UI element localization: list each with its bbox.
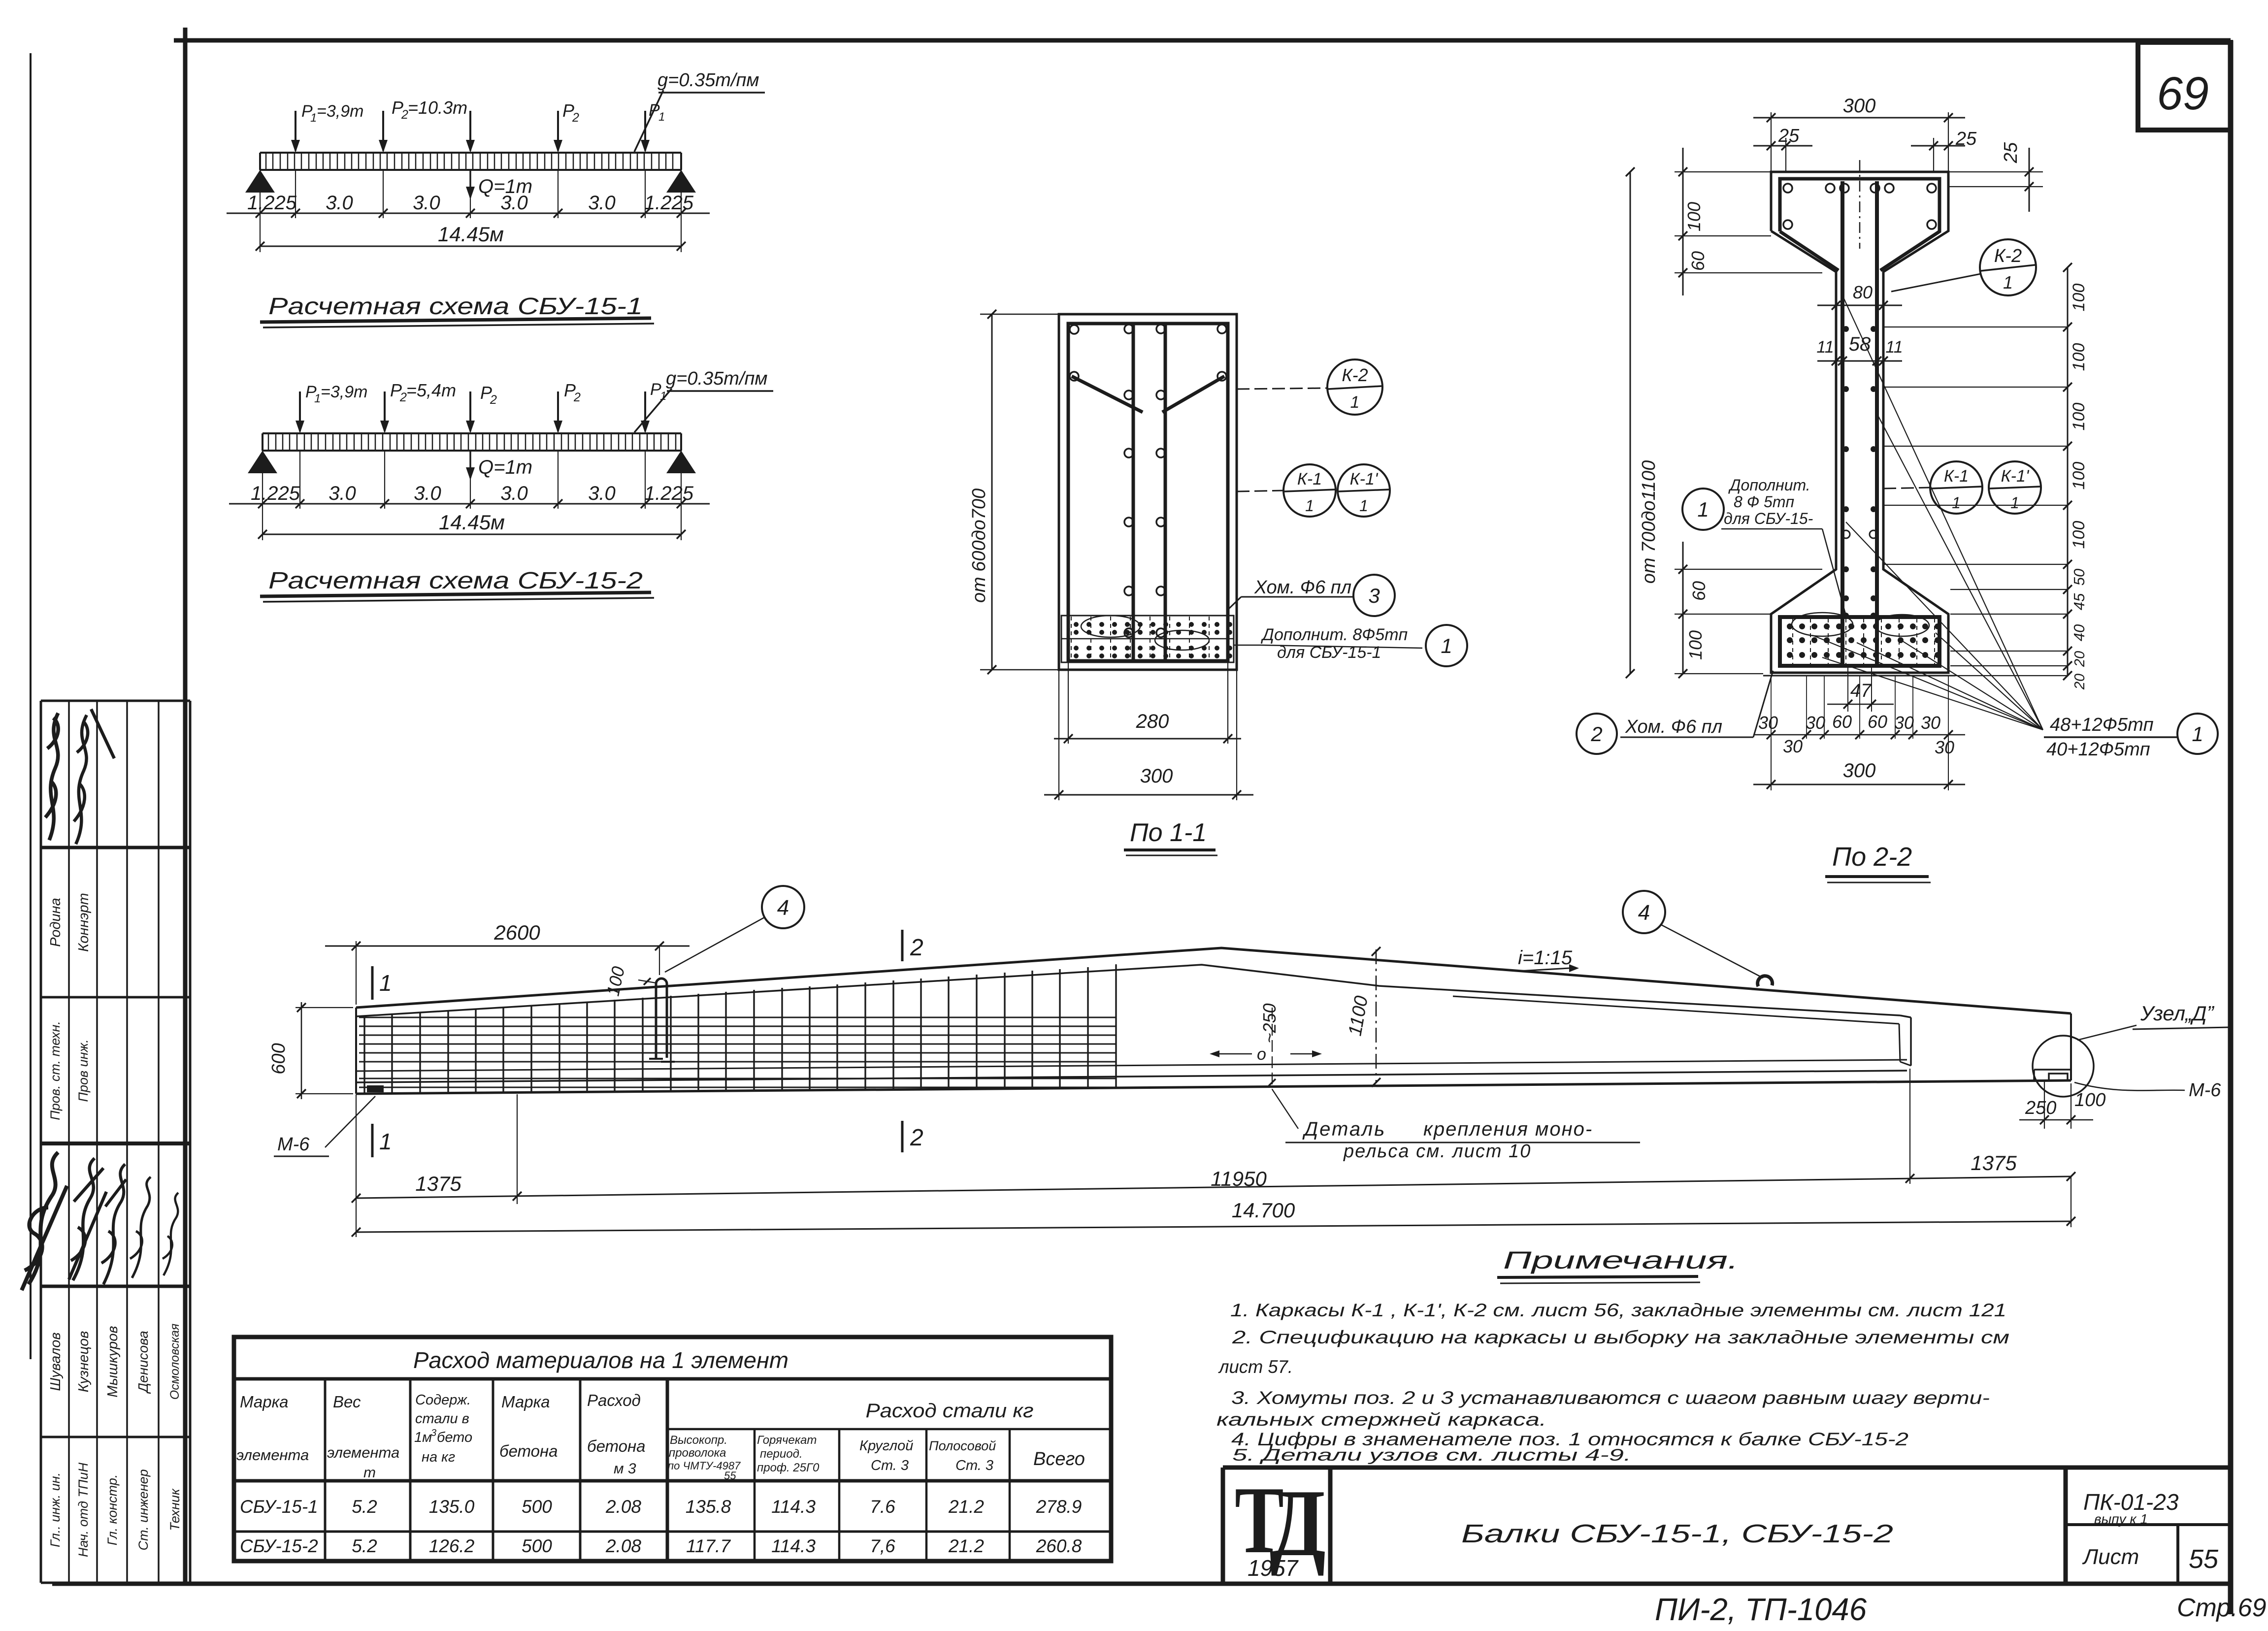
- svg-text:1: 1: [379, 970, 392, 996]
- svg-text:11: 11: [1816, 338, 1834, 357]
- svg-text:2: 2: [399, 391, 407, 404]
- svg-text:3.0: 3.0: [413, 192, 440, 214]
- svg-text:1м: 1м: [414, 1430, 432, 1445]
- svg-text:3.0: 3.0: [414, 483, 441, 504]
- svg-text:5. Детали узлов см. ли: 5. Детали узлов см. листы 4-9.: [1232, 1446, 1631, 1465]
- svg-text:Примечания.: Примечания.: [1503, 1246, 1739, 1274]
- svg-text:Расчетная схема СБУ-15-2: Расчетная схема СБУ-15-2: [268, 568, 643, 594]
- svg-text:Всего: Всего: [1033, 1449, 1085, 1469]
- svg-text:4: 4: [1638, 901, 1650, 925]
- svg-text:2: 2: [572, 111, 579, 125]
- svg-text:40: 40: [2071, 624, 2088, 641]
- svg-text:рельса см. лист 10: рельса см. лист 10: [1343, 1141, 1531, 1162]
- svg-text:Ст. инженер: Ст. инженер: [136, 1469, 151, 1550]
- svg-text:Шувалов: Шувалов: [48, 1332, 64, 1391]
- svg-text:СБУ-15-2: СБУ-15-2: [240, 1536, 318, 1556]
- svg-text:1: 1: [1952, 494, 1961, 512]
- svg-text:300: 300: [1843, 760, 1876, 782]
- svg-text:Техник: Техник: [167, 1488, 182, 1531]
- svg-text:Горячекат: Горячекат: [757, 1434, 817, 1447]
- svg-text:2: 2: [910, 1125, 923, 1151]
- svg-text:2: 2: [490, 393, 497, 407]
- svg-text:278.9: 278.9: [1036, 1497, 1082, 1517]
- svg-text:ПИ-2, ТП-1046: ПИ-2, ТП-1046: [1655, 1592, 1867, 1627]
- svg-text:3. Хомуты поз. 2 и 3 уста: 3. Хомуты поз. 2 и 3 устанавливаются с ш…: [1231, 1388, 1990, 1408]
- svg-text:114.3: 114.3: [771, 1497, 816, 1517]
- svg-text:60: 60: [1832, 712, 1852, 732]
- svg-text:30: 30: [1935, 737, 1954, 757]
- svg-text:крепления моно-: крепления моно-: [1423, 1118, 1593, 1140]
- svg-text:40+12Ф5тп: 40+12Ф5тп: [2046, 739, 2150, 760]
- svg-text:~250: ~250: [1259, 1003, 1280, 1043]
- svg-text:7,6: 7,6: [870, 1536, 895, 1556]
- svg-text:Ст. 3: Ст. 3: [871, 1458, 909, 1473]
- svg-text:1: 1: [1441, 634, 1452, 657]
- svg-text:Содерж.: Содерж.: [415, 1392, 471, 1408]
- svg-text:элемента: элемента: [327, 1444, 399, 1461]
- svg-text:500: 500: [522, 1497, 552, 1517]
- svg-text:Деталь: Деталь: [1302, 1118, 1386, 1140]
- svg-text:3.0: 3.0: [500, 192, 528, 214]
- svg-text:3.0: 3.0: [326, 192, 353, 214]
- svg-text:5.2: 5.2: [352, 1497, 377, 1517]
- svg-text:126.2: 126.2: [429, 1536, 475, 1556]
- svg-text:Высокопр.: Высокопр.: [670, 1434, 727, 1447]
- svg-text:3: 3: [431, 1428, 436, 1438]
- svg-text:135.0: 135.0: [429, 1497, 475, 1517]
- svg-text:g=0.35т/пм: g=0.35т/пм: [657, 70, 759, 91]
- svg-text:Дополнит.: Дополнит.: [1728, 476, 1810, 494]
- svg-text:2.08: 2.08: [605, 1497, 641, 1517]
- svg-text:период.: период.: [760, 1447, 803, 1461]
- svg-text:11: 11: [1885, 338, 1903, 357]
- svg-text:3.0: 3.0: [500, 483, 528, 504]
- svg-text:60: 60: [1689, 581, 1709, 601]
- svg-text:117.7: 117.7: [686, 1536, 731, 1556]
- svg-text:Марка: Марка: [240, 1393, 289, 1411]
- svg-text:Денисова: Денисова: [135, 1331, 151, 1394]
- svg-text:20: 20: [2072, 674, 2088, 690]
- svg-text:=3,9т: =3,9т: [321, 383, 367, 401]
- svg-text:выпу к 1: выпу к 1: [2094, 1511, 2148, 1527]
- svg-text:Мышкуров: Мышкуров: [105, 1326, 121, 1397]
- svg-text:100: 100: [2070, 521, 2088, 549]
- svg-text:25: 25: [1955, 129, 1977, 149]
- svg-text:14.45м: 14.45м: [438, 223, 504, 246]
- svg-text:СБУ-15-1: СБУ-15-1: [240, 1497, 318, 1517]
- svg-text:кальных стержней каркаса.: кальных стержней каркаса.: [1216, 1409, 1546, 1430]
- svg-text:Пров инж.: Пров инж.: [76, 1039, 91, 1102]
- svg-text:Балки СБУ-15-1, СБУ-15-2: Балки СБУ-15-1, СБУ-15-2: [1461, 1520, 1893, 1548]
- svg-text:К-1': К-1': [1350, 470, 1379, 489]
- svg-text:1: 1: [2010, 494, 2019, 512]
- svg-text:стали в: стали в: [415, 1411, 469, 1427]
- svg-text:2. Спецификацию на каркас: 2. Спецификацию на каркасы и выборку на …: [1232, 1327, 2009, 1347]
- svg-text:Хом. Ф6 пл: Хом. Ф6 пл: [1254, 577, 1351, 598]
- svg-text:М-6: М-6: [277, 1134, 310, 1155]
- svg-text:Родина: Родина: [48, 898, 64, 946]
- svg-text:Пров. ст. техн.: Пров. ст. техн.: [48, 1021, 63, 1120]
- svg-text:Лист: Лист: [2082, 1545, 2139, 1569]
- svg-text:100: 100: [2070, 343, 2088, 371]
- svg-text:По 1-1: По 1-1: [1130, 818, 1207, 847]
- svg-text:55: 55: [724, 1469, 736, 1482]
- svg-text:Гл.. инж. ин.: Гл.. инж. ин.: [48, 1472, 63, 1547]
- svg-text:от 600до700: от 600до700: [969, 489, 989, 603]
- svg-text:К-2: К-2: [1994, 246, 2022, 266]
- svg-text:100: 100: [2074, 1090, 2105, 1110]
- svg-text:100: 100: [2070, 462, 2088, 490]
- svg-text:47: 47: [1850, 681, 1872, 701]
- svg-text:проволока: проволока: [669, 1446, 726, 1460]
- svg-text:бетона: бетона: [587, 1437, 646, 1455]
- svg-text:Q=1т: Q=1т: [478, 457, 532, 478]
- svg-text:Кузнецов: Кузнецов: [76, 1331, 92, 1393]
- svg-text:5.2: 5.2: [352, 1536, 377, 1556]
- svg-text:проф. 25Г0: проф. 25Г0: [757, 1461, 820, 1474]
- svg-text:30: 30: [1894, 713, 1914, 733]
- svg-text:2.08: 2.08: [605, 1536, 641, 1556]
- svg-text:Дополнит. 8Ф5тп: Дополнит. 8Ф5тп: [1260, 625, 1408, 644]
- svg-text:21.2: 21.2: [948, 1536, 984, 1556]
- svg-text:114.3: 114.3: [771, 1536, 816, 1556]
- svg-text:Расчетная схема СБУ-15-1: Расчетная схема СБУ-15-1: [268, 294, 643, 320]
- svg-text:К-1: К-1: [1944, 467, 1969, 486]
- svg-text:По 2-2: По 2-2: [1832, 842, 1912, 872]
- svg-text:Хом. Ф6 пл: Хом. Ф6 пл: [1625, 717, 1722, 737]
- svg-text:300: 300: [1140, 765, 1173, 787]
- svg-text:50: 50: [2071, 569, 2088, 586]
- svg-text:=5,4т: =5,4т: [406, 380, 456, 400]
- svg-text:1957: 1957: [1248, 1555, 1299, 1581]
- svg-text:1: 1: [1697, 498, 1709, 521]
- svg-text:1: 1: [658, 110, 665, 124]
- svg-text:Расход материалов на 1 эле: Расход материалов на 1 элемент: [413, 1347, 789, 1373]
- svg-text:Осмоловская: Осмоловская: [168, 1324, 182, 1400]
- svg-text:Ст. 3: Ст. 3: [955, 1458, 993, 1473]
- svg-text:100: 100: [1684, 202, 1704, 231]
- svg-text:69: 69: [2157, 67, 2209, 120]
- svg-text:25: 25: [2001, 142, 2021, 163]
- svg-text:1: 1: [1305, 497, 1314, 515]
- svg-text:11950: 11950: [1211, 1167, 1267, 1190]
- svg-text:К-1': К-1': [2001, 467, 2030, 486]
- svg-text:1.225: 1.225: [251, 483, 300, 504]
- svg-text:Расход стали кг: Расход стали кг: [866, 1400, 1034, 1422]
- svg-text:1.225: 1.225: [247, 192, 297, 214]
- svg-text:20: 20: [2072, 651, 2088, 667]
- svg-text:4: 4: [777, 896, 789, 920]
- svg-text:58: 58: [1849, 333, 1871, 355]
- svg-text:Расход: Расход: [587, 1391, 641, 1409]
- svg-text:элемента: элемента: [236, 1446, 309, 1464]
- svg-text:=10.3т: =10.3т: [408, 98, 467, 118]
- svg-text:2: 2: [910, 935, 923, 961]
- svg-text:30: 30: [1921, 713, 1940, 733]
- svg-text:7.6: 7.6: [870, 1497, 895, 1517]
- svg-text:м 3: м 3: [614, 1461, 636, 1477]
- svg-text:Узел„Д”: Узел„Д”: [2140, 1002, 2215, 1025]
- svg-text:от 700до1100: от 700до1100: [1639, 460, 1659, 584]
- svg-text:на кг: на кг: [422, 1449, 455, 1465]
- svg-text:55: 55: [2189, 1544, 2219, 1574]
- svg-text:i=1:15: i=1:15: [1518, 947, 1573, 969]
- svg-text:К-2: К-2: [1342, 365, 1368, 385]
- svg-text:250: 250: [2025, 1098, 2056, 1118]
- svg-text:М-6: М-6: [2189, 1080, 2221, 1101]
- svg-text:3: 3: [1368, 584, 1380, 607]
- svg-text:1. Каркасы К-1 , К-1', К-2: 1. Каркасы К-1 , К-1', К-2 см. лист 56, …: [1230, 1300, 2006, 1320]
- svg-text:100: 100: [2070, 284, 2088, 312]
- svg-text:о: о: [1257, 1045, 1266, 1064]
- svg-text:лист 57.: лист 57.: [1218, 1357, 1293, 1377]
- svg-text:Круглой: Круглой: [859, 1438, 913, 1454]
- svg-text:Нач. отд ТПиН: Нач. отд ТПиН: [76, 1463, 91, 1557]
- svg-text:14.45м: 14.45м: [439, 511, 505, 534]
- svg-text:1: 1: [2192, 722, 2203, 746]
- svg-text:100: 100: [1685, 630, 1706, 660]
- svg-text:600: 600: [268, 1043, 289, 1074]
- svg-text:30: 30: [1783, 736, 1803, 756]
- svg-text:бето: бето: [437, 1430, 472, 1445]
- svg-text:48+12Ф5тп: 48+12Ф5тп: [2050, 715, 2154, 735]
- svg-text:1375: 1375: [1971, 1151, 2017, 1174]
- svg-text:25: 25: [1778, 126, 1800, 146]
- svg-text:Вес: Вес: [333, 1393, 361, 1411]
- svg-text:Марка: Марка: [501, 1393, 550, 1411]
- svg-text:8 Ф 5тп: 8 Ф 5тп: [1734, 493, 1794, 511]
- svg-text:30: 30: [1758, 713, 1778, 733]
- svg-text:1: 1: [1359, 497, 1368, 515]
- svg-text:1375: 1375: [415, 1172, 461, 1195]
- svg-text:2: 2: [573, 391, 581, 404]
- svg-text:45: 45: [2071, 593, 2088, 610]
- svg-text:60: 60: [1688, 251, 1708, 271]
- svg-text:1: 1: [2003, 272, 2013, 293]
- svg-text:1: 1: [1350, 393, 1360, 412]
- svg-text:для СБУ-15-: для СБУ-15-: [1724, 510, 1813, 527]
- svg-text:2: 2: [401, 108, 408, 122]
- svg-text:21.2: 21.2: [948, 1497, 984, 1517]
- svg-text:К-1: К-1: [1297, 470, 1322, 489]
- svg-text:2600: 2600: [493, 921, 540, 944]
- svg-text:280: 280: [1136, 711, 1169, 732]
- svg-text:260.8: 260.8: [1036, 1536, 1082, 1556]
- svg-text:1: 1: [314, 392, 321, 405]
- svg-text:135.8: 135.8: [686, 1497, 731, 1517]
- svg-text:100: 100: [2070, 403, 2088, 431]
- svg-text:Гл. констр.: Гл. констр.: [105, 1474, 120, 1546]
- svg-text:Полосовой: Полосовой: [929, 1438, 996, 1453]
- svg-text:2: 2: [1590, 722, 1602, 746]
- svg-text:g=0.35т/пм: g=0.35т/пм: [666, 368, 767, 389]
- svg-text:3.0: 3.0: [588, 483, 616, 504]
- svg-text:1.225: 1.225: [644, 483, 694, 504]
- svg-text:1.225: 1.225: [644, 192, 694, 214]
- svg-text:14.700: 14.700: [1232, 1199, 1295, 1222]
- svg-text:Коннэрт: Коннэрт: [76, 893, 92, 952]
- svg-text:1: 1: [379, 1129, 392, 1154]
- svg-text:500: 500: [522, 1536, 552, 1556]
- svg-text:300: 300: [1843, 95, 1876, 117]
- svg-text:бетона: бетона: [499, 1442, 558, 1460]
- svg-text:=3,9т: =3,9т: [317, 102, 363, 121]
- svg-text:т: т: [363, 1465, 376, 1481]
- svg-text:30: 30: [1806, 713, 1825, 733]
- svg-text:3.0: 3.0: [588, 192, 616, 214]
- svg-text:1: 1: [310, 111, 317, 125]
- svg-text:3.0: 3.0: [329, 483, 356, 504]
- svg-text:60: 60: [1868, 712, 1887, 732]
- svg-text:80: 80: [1853, 282, 1873, 302]
- svg-text:Стр.69: Стр.69: [2177, 1594, 2267, 1622]
